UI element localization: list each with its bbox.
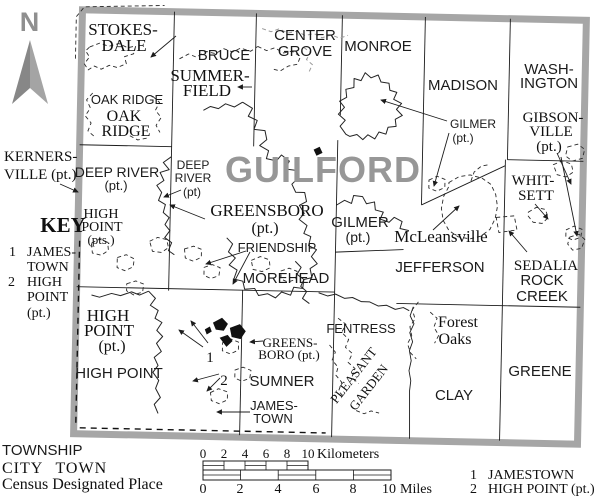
township-washington: INGTON xyxy=(520,75,578,92)
cdp-mcleansville: McLeansville xyxy=(394,227,487,246)
town-oak-ridge: RIDGE xyxy=(102,123,151,140)
compass-needle-icon xyxy=(12,40,30,104)
city-high-point: (pt.) xyxy=(98,338,125,355)
town-whitsett: SETT xyxy=(518,188,554,204)
township-jefferson: JEFFERSON xyxy=(395,259,484,276)
km-tick: 8 xyxy=(284,446,291,461)
county-name-label: GUILFORD xyxy=(225,149,421,190)
mi-tick: 4 xyxy=(275,482,282,497)
town-summerfield: FIELD xyxy=(183,81,231,100)
legend-cdp: Census Designated Place xyxy=(2,476,163,493)
ref-number-2: 2 xyxy=(220,373,228,389)
town-kernersville: KERNERS- xyxy=(4,149,77,165)
key-item-1-number: 1 xyxy=(9,245,16,260)
mi-tick: 2 xyxy=(237,482,244,497)
km-tick: 10 xyxy=(302,446,315,461)
township-high-point: HIGH POINT xyxy=(75,365,163,382)
township-center-grove: CENTER xyxy=(274,27,336,44)
town-sedalia: SEDALIA xyxy=(514,258,578,274)
township-monroe: MONROE xyxy=(344,38,412,55)
city-greensboro: (pt.) xyxy=(251,220,278,237)
guilford-county-map-figure: N GUILFORD BRUCE CENTER GROVE MONROE MAD… xyxy=(0,0,600,497)
town-stokesdale: DALE xyxy=(101,36,146,55)
ref-list-2-name: HIGH POINT (pt.) xyxy=(488,482,595,497)
town-gibsonville: (pt.) xyxy=(536,139,561,155)
km-tick: 6 xyxy=(263,446,270,461)
mi-tick: 10 xyxy=(382,482,396,497)
township-clay: CLAY xyxy=(435,387,473,404)
ref-number-1: 1 xyxy=(206,350,214,366)
town-kernersville: VILLE (pt.) xyxy=(4,167,76,183)
mi-tick: 8 xyxy=(350,482,357,497)
gilmer-ne-label: GILMER xyxy=(450,117,496,131)
city-greensboro: GREENSBORO xyxy=(210,201,323,220)
legend-township: TOWNSHIP xyxy=(2,442,83,459)
compass-rose: N xyxy=(12,7,48,104)
gilmer-ne-label: (pt.) xyxy=(452,131,473,145)
key-item-2-label: HIGH xyxy=(27,275,62,290)
key-item-2-label: (pt.) xyxy=(27,306,51,321)
township-bruce: BRUCE xyxy=(198,47,251,64)
cdp-forest-oaks: Oaks xyxy=(439,331,472,348)
township-fentress: FENTRESS xyxy=(326,321,396,336)
ref-list-1-number: 1 xyxy=(470,468,477,483)
township-greene: GREENE xyxy=(508,363,571,380)
township-madison: MADISON xyxy=(428,77,498,94)
cdp-forest-oaks: Forest xyxy=(438,314,479,331)
legend-city-town: CITY TOWN xyxy=(2,460,107,477)
compass-needle-icon xyxy=(30,40,48,104)
key-item-1-label: JAMES- xyxy=(27,245,76,260)
town-gibsonville: VILLE xyxy=(529,124,572,140)
compass-north-label: N xyxy=(20,7,41,37)
km-tick: 0 xyxy=(200,446,207,461)
township-rock-creek: ROCK xyxy=(520,272,563,289)
key-item-1-label: TOWN xyxy=(27,260,69,275)
mi-unit-label: Miles xyxy=(400,482,432,497)
township-gilmer: (pt.) xyxy=(346,229,371,245)
km-tick: 4 xyxy=(242,446,249,461)
city-greensboro-small: BORO (pt.) xyxy=(258,347,319,362)
key-item-2-number: 2 xyxy=(8,275,15,290)
township-rock-creek: CREEK xyxy=(516,288,568,305)
key-title: KEY xyxy=(40,213,86,237)
ref-list-2-number: 2 xyxy=(470,482,477,497)
township-deep-river: (pt.) xyxy=(104,178,127,193)
city-high-point-pts: (pts.) xyxy=(87,232,114,247)
mi-tick: 6 xyxy=(313,482,320,497)
key-item-2-label: POINT xyxy=(27,290,69,305)
mi-tick: 0 xyxy=(200,482,207,497)
township-friendship: FRIENDSHIP xyxy=(238,240,317,255)
km-tick: 2 xyxy=(221,446,228,461)
km-unit-label: Kilometers xyxy=(317,447,379,462)
scale-bar: 0 2 4 6 8 10 Kilometers 0 2 4 6 8 10 Mil… xyxy=(200,446,432,497)
deep-river-small-label: (pt) xyxy=(183,185,201,199)
township-oak-ridge: OAK RIDGE xyxy=(91,92,164,107)
township-morehead: MOREHEAD xyxy=(243,270,330,287)
deep-river-small-label: RIVER xyxy=(175,171,212,185)
legend-label-styles: TOWNSHIP CITY TOWN Census Designated Pla… xyxy=(2,442,163,493)
ref-list-1-name: JAMESTOWN xyxy=(488,468,574,483)
town-whitsett: WHIT- xyxy=(512,173,555,189)
reference-list: 1 JAMESTOWN 2 HIGH POINT (pt.) xyxy=(470,468,595,497)
deep-river-small-label: DEEP xyxy=(177,158,210,172)
map-canvas: N GUILFORD BRUCE CENTER GROVE MONROE MAD… xyxy=(0,0,600,497)
township-center-grove: GROVE xyxy=(278,43,332,60)
township-sumner: SUMNER xyxy=(249,373,314,390)
township-jamestown: TOWN xyxy=(253,411,292,426)
